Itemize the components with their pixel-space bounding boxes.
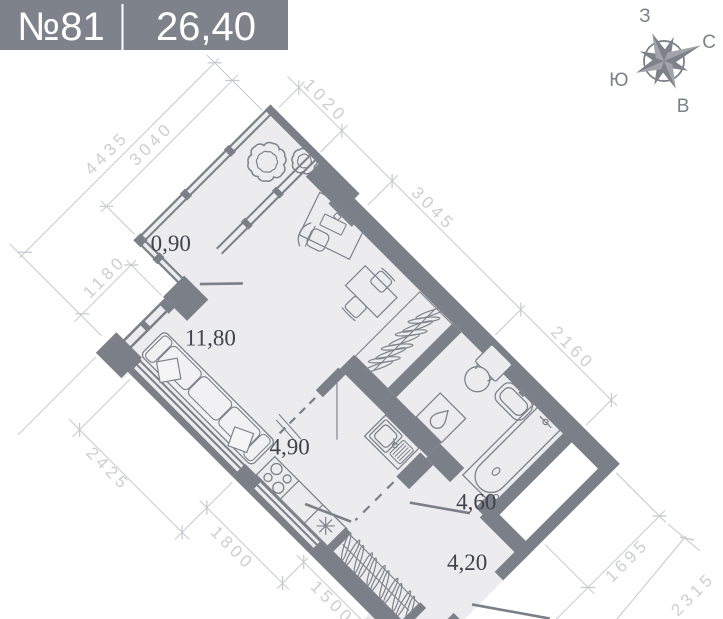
svg-text:4,90: 4,90: [269, 435, 309, 460]
svg-text:С: С: [702, 32, 716, 53]
svg-text:26,40: 26,40: [156, 5, 256, 49]
svg-text:2425: 2425: [82, 443, 133, 494]
svg-text:3045: 3045: [408, 183, 459, 234]
svg-text:1800: 1800: [207, 522, 258, 573]
svg-text:2160: 2160: [547, 322, 598, 373]
svg-text:Ю: Ю: [609, 70, 628, 91]
svg-text:З: З: [639, 6, 650, 27]
svg-text:№81: №81: [17, 5, 104, 49]
svg-text:1695: 1695: [601, 534, 652, 585]
svg-text:0,90: 0,90: [151, 231, 191, 256]
svg-text:4,60: 4,60: [456, 490, 496, 515]
svg-text:1020: 1020: [300, 75, 351, 126]
svg-text:2315: 2315: [667, 568, 718, 619]
svg-text:В: В: [677, 96, 690, 117]
svg-text:1180: 1180: [79, 251, 130, 302]
svg-text:4,20: 4,20: [447, 550, 487, 575]
svg-text:11,80: 11,80: [185, 326, 236, 351]
